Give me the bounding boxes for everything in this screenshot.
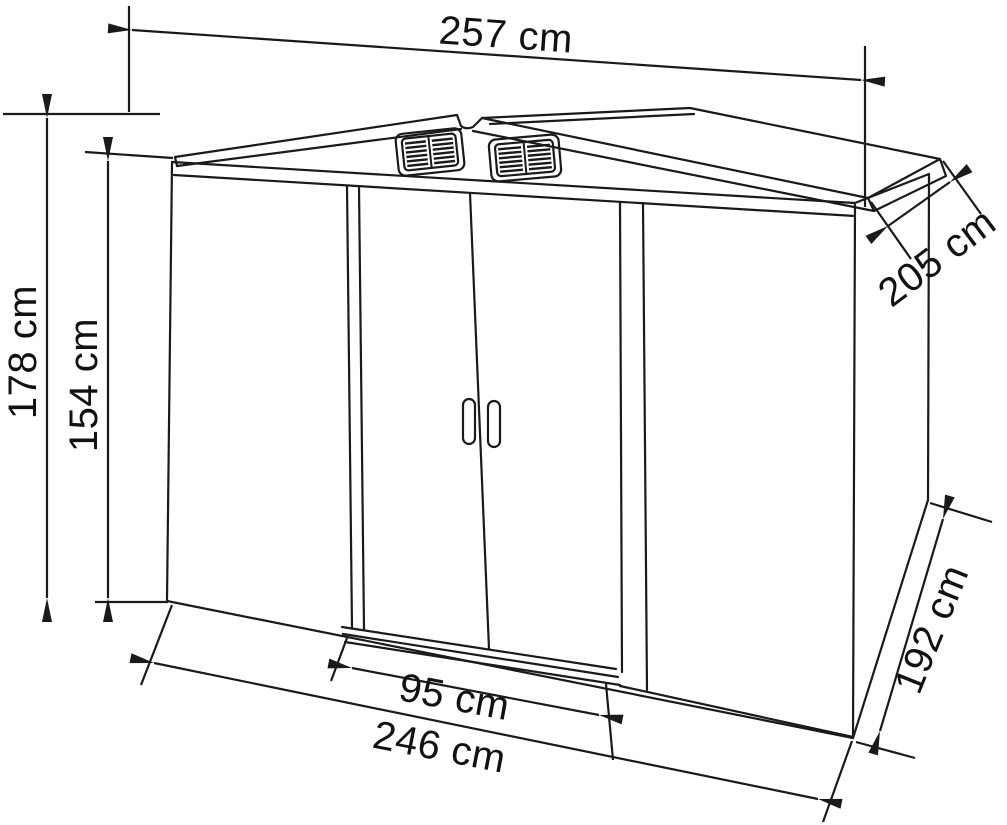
shed-walls xyxy=(167,162,929,738)
door-handle-left xyxy=(463,399,475,444)
dim-label-wall-height: 154 cm xyxy=(62,318,106,452)
door-handle-right xyxy=(488,401,500,447)
shed-dimension-diagram: 257 cm 178 cm 154 cm 205 cm 95 cm 246 cm… xyxy=(0,0,1007,825)
dim-label-overall-height: 178 cm xyxy=(1,285,45,419)
roof-vent-right-grille xyxy=(488,134,561,182)
dim-label-overall-width: 257 cm xyxy=(437,8,574,61)
dim-label-base-depth: 192 cm xyxy=(886,559,977,700)
line-drawing: 257 cm 178 cm 154 cm 205 cm 95 cm 246 cm… xyxy=(0,0,1007,825)
sliding-doors xyxy=(342,186,647,690)
dim-label-roof-depth: 205 cm xyxy=(870,200,1004,316)
roof-vent-left-grille xyxy=(395,128,465,177)
